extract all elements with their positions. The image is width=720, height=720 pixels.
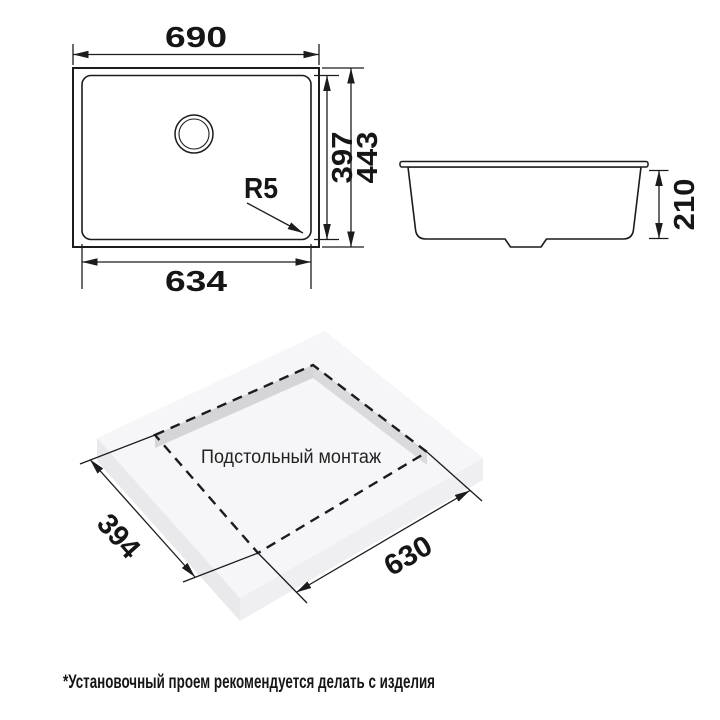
sink-technical-drawing: 690 397 443 634 R5: [0, 0, 720, 720]
dimension-210-label: 210: [669, 179, 701, 231]
corner-radius-label: R5: [244, 173, 278, 205]
bowl-profile: [408, 167, 641, 247]
dimension-443-label: 443: [352, 132, 384, 184]
mounting-type-caption: Подстольный монтаж: [201, 447, 381, 468]
dimension-634-label: 634: [165, 266, 227, 298]
dimension-690-label: 690: [165, 22, 227, 54]
rim-profile: [400, 162, 648, 168]
sink-bowl-rect: [82, 76, 311, 240]
footnote-text: *Установочный проем рекомендуется делать…: [63, 672, 435, 693]
